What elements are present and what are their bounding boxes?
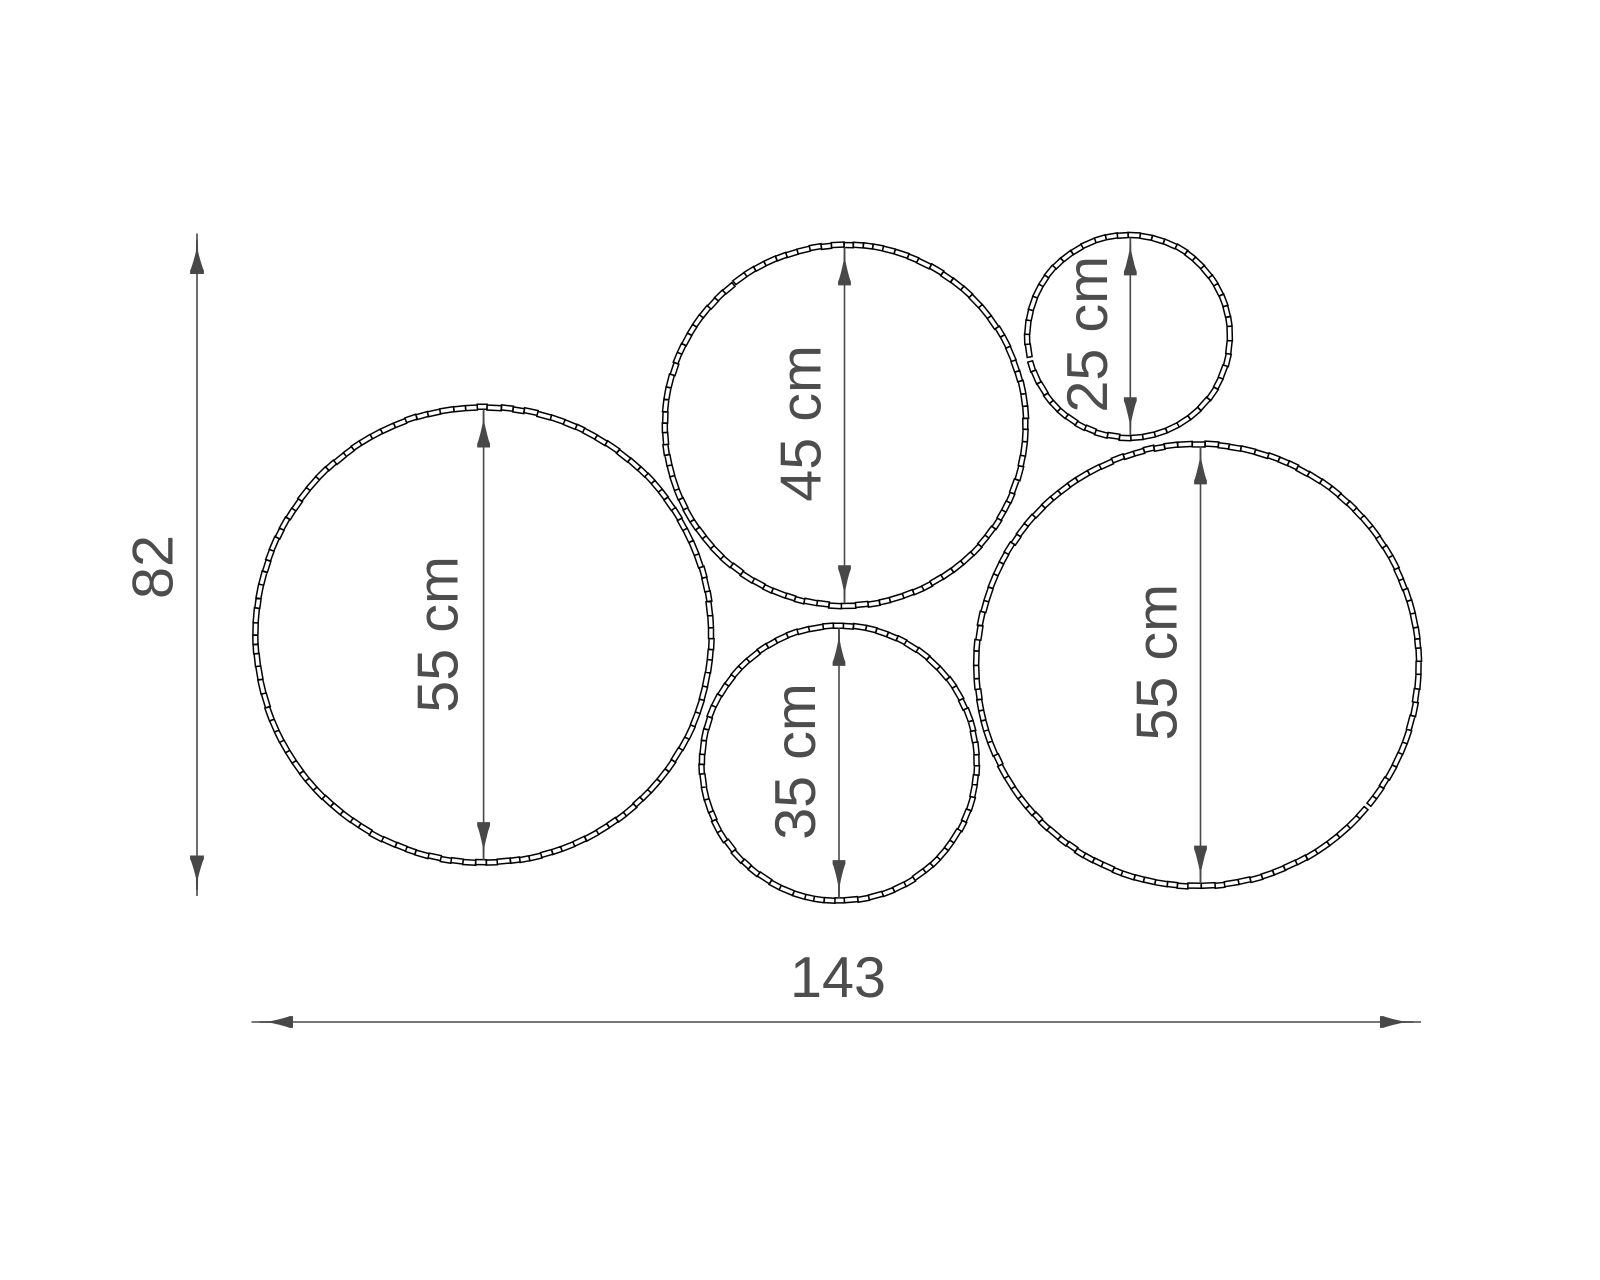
svg-text:25 cm: 25 cm	[1056, 256, 1120, 413]
svg-text:35 cm: 35 cm	[764, 683, 828, 840]
svg-text:45 cm: 45 cm	[770, 345, 834, 502]
svg-text:55 cm: 55 cm	[1126, 584, 1190, 741]
svg-text:55 cm: 55 cm	[407, 556, 471, 713]
svg-text:82: 82	[122, 535, 186, 599]
svg-text:143: 143	[790, 946, 886, 1010]
